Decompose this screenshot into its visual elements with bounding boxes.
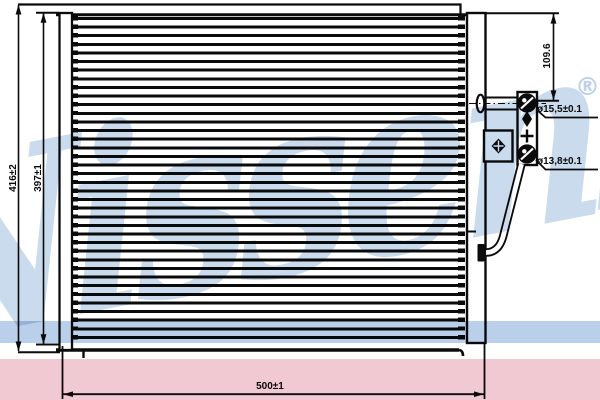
dim-upper-port-label: ø15,5±0.1 xyxy=(537,104,582,116)
dim-overall-width-label: 500±1 xyxy=(240,381,300,393)
core-outline xyxy=(18,5,466,359)
dim-core-height-label: 397±1 xyxy=(33,148,45,208)
condenser-technical-drawing: 416±2 397±1 109.6 ø15,5±0.1 ø13,8±0.1 50… xyxy=(0,0,600,400)
dim-lower-port-label: ø13,8±0.1 xyxy=(537,156,582,168)
line-art xyxy=(0,0,600,400)
left-side-plate xyxy=(60,13,73,350)
connector-block xyxy=(517,92,537,165)
dim-port-offset-label: 109.6 xyxy=(542,26,554,86)
mounting-bracket xyxy=(484,131,513,162)
right-header-tank xyxy=(467,13,486,343)
dim-overall-height-label: 416±2 xyxy=(8,148,20,208)
